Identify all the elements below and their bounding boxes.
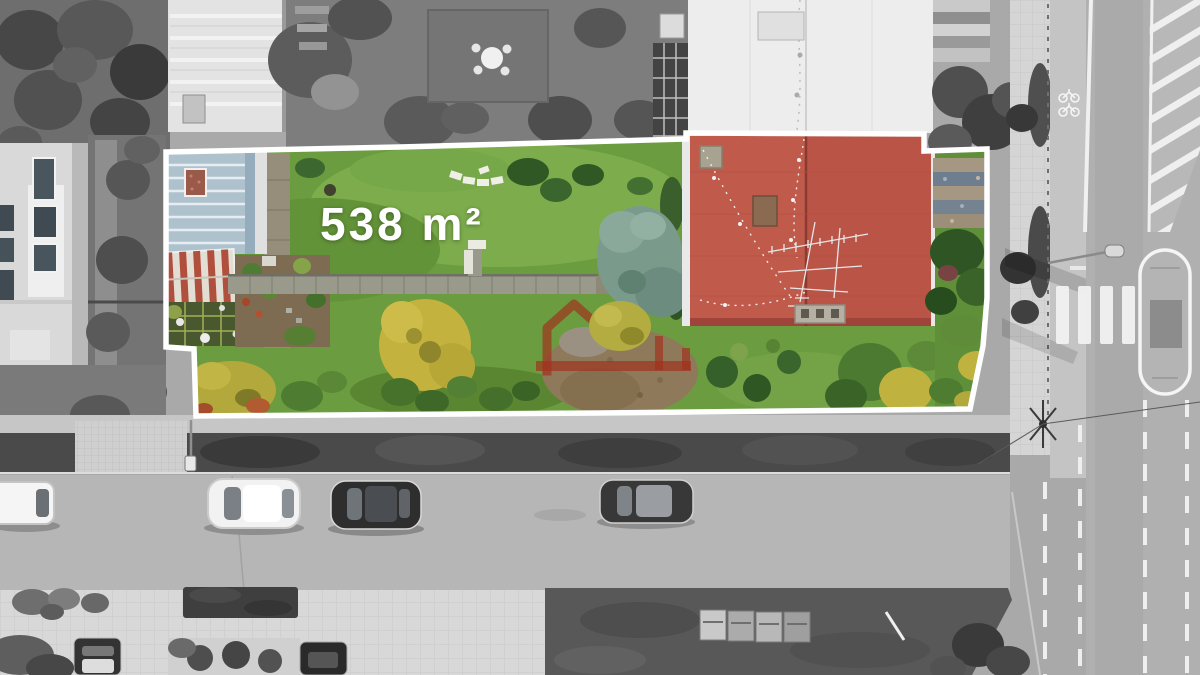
garden-bed (235, 255, 330, 347)
parked-car-driveway-2 (300, 642, 347, 675)
blue-roof-house (166, 152, 267, 254)
parked-car-white-van (0, 482, 60, 532)
area-label: 538 m² (320, 198, 484, 250)
terrace-steps-gray (933, 0, 990, 62)
parked-car-dark-2 (597, 480, 695, 529)
parked-car-driveway-1 (74, 638, 121, 675)
garden-top-middle (268, 0, 688, 152)
white-roof-building (688, 0, 933, 133)
red-roof-building (682, 130, 935, 326)
parked-car-white (204, 479, 304, 535)
garden-table (481, 47, 503, 69)
well-cover (324, 184, 336, 196)
parked-car-dark (328, 481, 424, 536)
road-asphalt (0, 475, 1010, 590)
garden-shed-roof (162, 249, 237, 308)
aerial-photo-canvas: 538 m² (0, 0, 1200, 675)
plot-area (150, 120, 1000, 430)
building-roof-top-left (168, 0, 286, 132)
bike-lane (1050, 0, 1086, 478)
traffic-island (1140, 250, 1190, 394)
chimney (185, 169, 206, 196)
aerial-photo: 538 m² (0, 0, 1200, 675)
cobble-entry (75, 420, 187, 474)
chimney-red-roof (753, 196, 777, 226)
greenhouse-plot (166, 302, 241, 346)
street (0, 415, 1030, 675)
